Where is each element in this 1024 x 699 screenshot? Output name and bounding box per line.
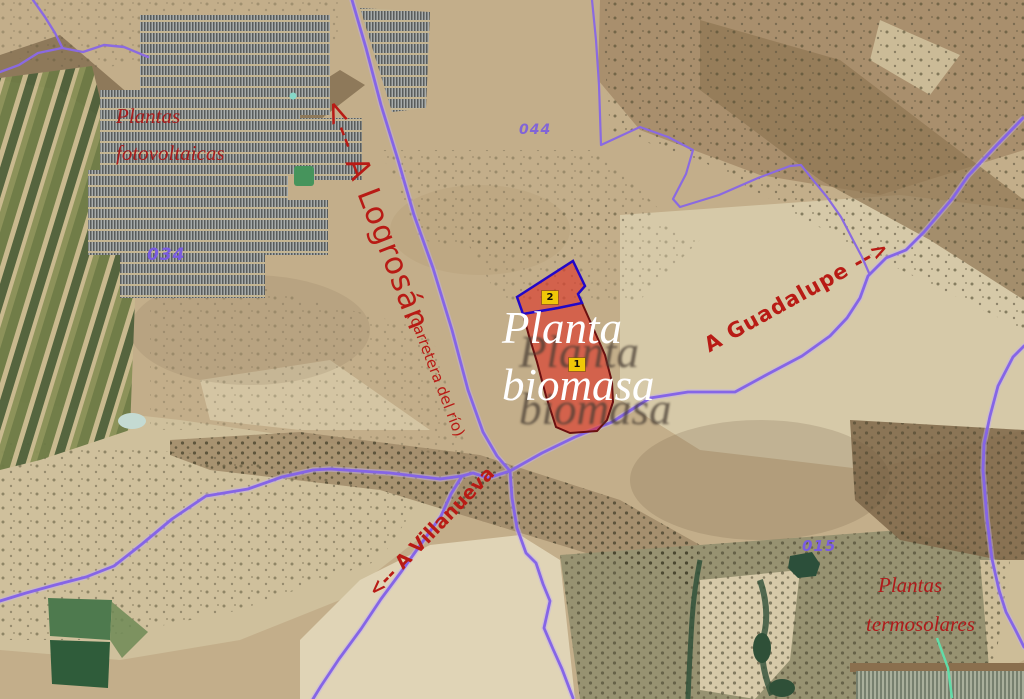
- thermosolar-array: [850, 663, 1024, 699]
- terrain-mottle: [630, 420, 890, 540]
- thermo-panels: [856, 671, 1024, 699]
- pv-block: [173, 268, 223, 294]
- creek-blob: [753, 633, 771, 663]
- pond: [118, 413, 146, 429]
- field-parcel: [48, 598, 112, 640]
- label-plantas-termosolares: Plantas termosolares: [866, 566, 975, 644]
- pv-block: [258, 200, 328, 255]
- pond: [290, 93, 297, 100]
- parcel-number-034: 034: [147, 245, 186, 265]
- label-line: Plantas: [116, 98, 225, 135]
- label-line: Plantas: [866, 566, 975, 605]
- label-line: fotovoltaicas: [116, 135, 225, 172]
- marker-badge-2: 2: [542, 291, 558, 304]
- label-line: Planta: [502, 300, 655, 357]
- parcel-number-015: 015: [802, 537, 836, 555]
- label-plantas-fotovoltaicas: Plantas fotovoltaicas: [116, 98, 225, 172]
- thermo-strip: [850, 663, 1024, 672]
- creek-blob: [769, 679, 795, 697]
- pond: [294, 166, 314, 186]
- parcel-number-044: 044: [519, 122, 551, 138]
- label-planta-biomasa: Planta biomasa: [502, 300, 655, 414]
- satellite-map: Plantas fotovoltaicas <-- A Logrosán (ca…: [0, 0, 1024, 699]
- label-line: termosolares: [866, 605, 975, 644]
- field-parcel: [50, 640, 110, 688]
- marker-badge-1: 1: [569, 358, 585, 371]
